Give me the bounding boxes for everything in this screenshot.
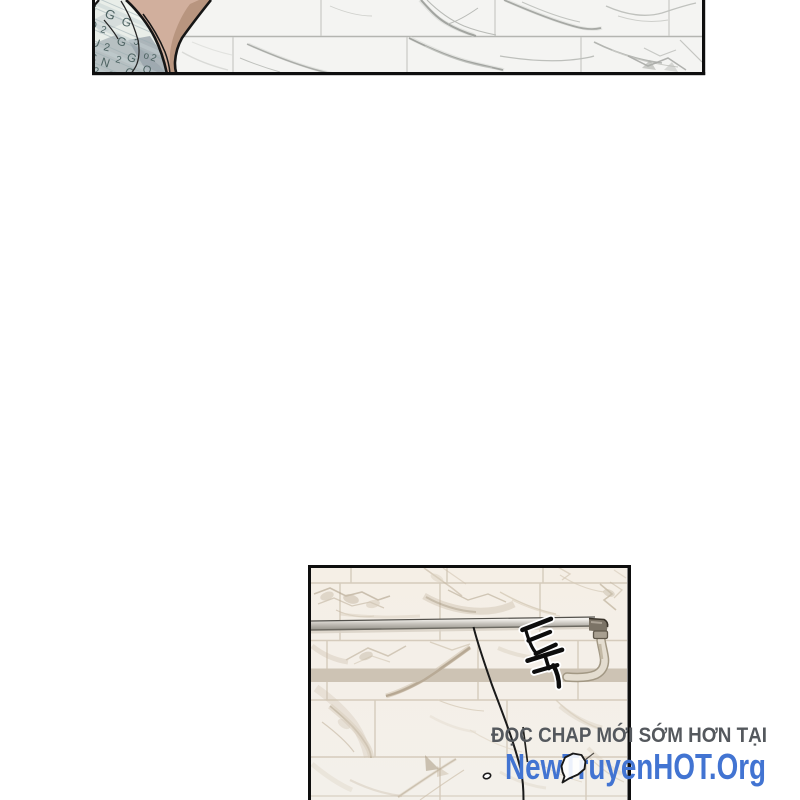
svg-text:ĐỌC CHAP MỚI SỚM HƠN TẠI: ĐỌC CHAP MỚI SỚM HƠN TẠI bbox=[491, 723, 767, 747]
svg-text:NewTruyenHOT.Org: NewTruyenHOT.Org bbox=[505, 746, 766, 787]
